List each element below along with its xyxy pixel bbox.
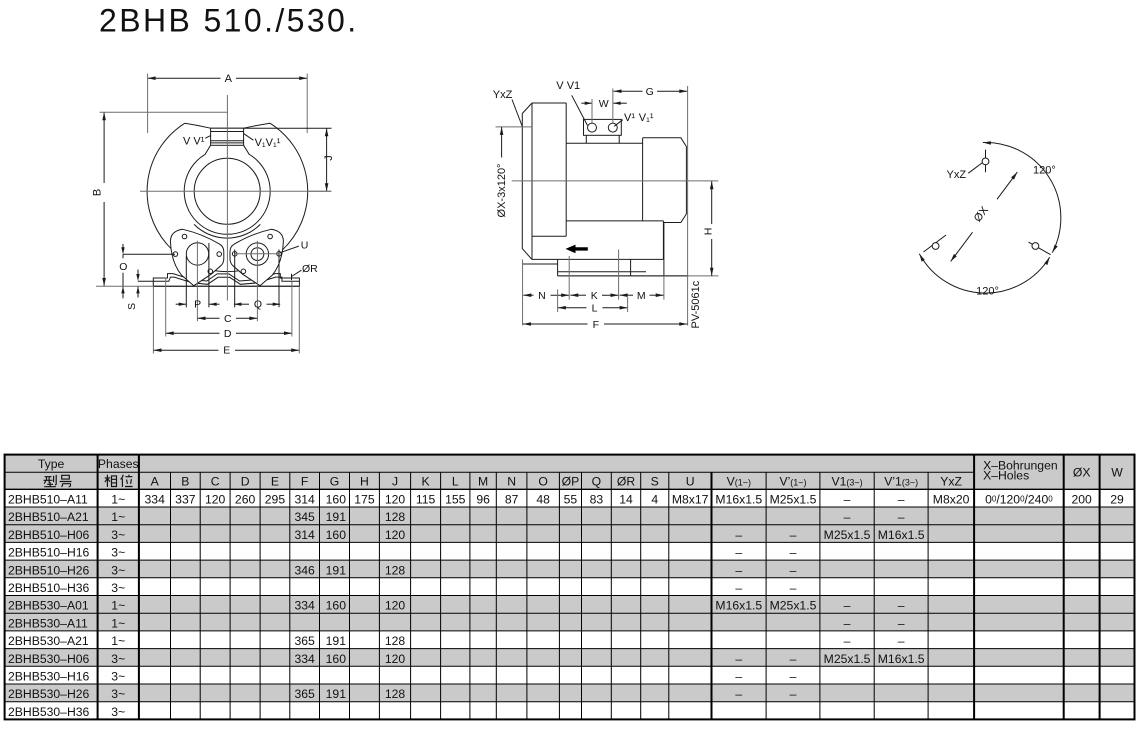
svg-text:–: – — [790, 652, 797, 666]
svg-text:–: – — [790, 546, 797, 560]
svg-text:334: 334 — [294, 599, 315, 613]
svg-text:120°: 120° — [976, 286, 999, 298]
svg-text:ØP: ØP — [562, 474, 580, 488]
svg-text:3~: 3~ — [111, 528, 125, 542]
svg-text:M8x20: M8x20 — [933, 492, 970, 506]
svg-text:–: – — [735, 563, 742, 577]
svg-text:2BHB530–H26: 2BHB530–H26 — [8, 687, 90, 701]
svg-text:M: M — [637, 290, 646, 302]
svg-text:O: O — [119, 261, 127, 273]
svg-text:–: – — [790, 581, 797, 595]
svg-text:–: – — [898, 599, 905, 613]
svg-text:295: 295 — [265, 492, 286, 506]
svg-text:1~: 1~ — [111, 510, 125, 524]
svg-text:48: 48 — [536, 492, 550, 506]
svg-text:H: H — [703, 228, 715, 236]
svg-text:346: 346 — [294, 563, 315, 577]
svg-text:M16x1.5: M16x1.5 — [878, 652, 925, 666]
svg-text:128: 128 — [385, 510, 406, 524]
svg-text:Type: Type — [38, 457, 65, 471]
svg-text:160: 160 — [326, 492, 347, 506]
svg-text:96: 96 — [476, 492, 490, 506]
svg-text:2BHB 510./530.: 2BHB 510./530. — [99, 3, 359, 39]
svg-text:Phases: Phases — [98, 457, 139, 471]
svg-text:M16x1.5: M16x1.5 — [715, 492, 762, 506]
svg-text:120: 120 — [205, 492, 226, 506]
svg-text:334: 334 — [145, 492, 166, 506]
svg-text:–: – — [735, 528, 742, 542]
svg-text:A: A — [151, 474, 160, 488]
svg-text:G: G — [330, 474, 339, 488]
svg-text:175: 175 — [354, 492, 375, 506]
svg-text:K: K — [422, 474, 430, 488]
svg-text:191: 191 — [326, 687, 347, 701]
svg-text:128: 128 — [385, 634, 406, 648]
svg-text:1~: 1~ — [111, 634, 125, 648]
svg-text:83: 83 — [590, 492, 604, 506]
svg-text:3~: 3~ — [111, 563, 125, 577]
svg-text:X–Holes: X–Holes — [983, 468, 1029, 482]
svg-text:–: – — [898, 510, 905, 524]
svg-text:2BHB530–H06: 2BHB530–H06 — [8, 652, 90, 666]
svg-text:N: N — [538, 290, 546, 302]
svg-text:337: 337 — [175, 492, 196, 506]
svg-text:J: J — [392, 474, 398, 488]
svg-text:M16x1.5: M16x1.5 — [878, 528, 925, 542]
svg-text:2BHB510–H26: 2BHB510–H26 — [8, 563, 90, 577]
svg-text:314: 314 — [294, 528, 315, 542]
svg-text:–: – — [790, 687, 797, 701]
svg-text:S: S — [651, 474, 659, 488]
svg-text:–: – — [844, 616, 851, 630]
svg-text:120°: 120° — [1033, 165, 1056, 177]
svg-text:155: 155 — [445, 492, 466, 506]
svg-text:V V¹: V V¹ — [183, 136, 205, 148]
svg-text:1~: 1~ — [111, 492, 125, 506]
svg-text:200: 200 — [1071, 492, 1092, 506]
svg-text:M16x1.5: M16x1.5 — [715, 599, 762, 613]
svg-text:–: – — [844, 599, 851, 613]
svg-text:2BHB510–H36: 2BHB510–H36 — [8, 581, 90, 595]
svg-text:128: 128 — [385, 563, 406, 577]
svg-text:V’1(3~): V’1(3~) — [884, 474, 918, 488]
svg-text:2BHB510–A11: 2BHB510–A11 — [8, 492, 88, 506]
svg-text:128: 128 — [385, 687, 406, 701]
svg-text:–: – — [735, 546, 742, 560]
svg-text:C: C — [211, 474, 220, 488]
svg-text:334: 334 — [294, 652, 315, 666]
svg-text:V¹: V¹ — [624, 112, 635, 124]
svg-text:W: W — [1111, 465, 1123, 479]
svg-text:2BHB530–A21: 2BHB530–A21 — [8, 634, 89, 648]
svg-text:U: U — [301, 239, 309, 251]
svg-text:191: 191 — [326, 563, 347, 577]
svg-text:191: 191 — [326, 634, 347, 648]
svg-text:160: 160 — [326, 599, 347, 613]
svg-text:J: J — [323, 155, 335, 161]
svg-text:14: 14 — [619, 492, 633, 506]
svg-text:120: 120 — [385, 652, 406, 666]
svg-text:Q: Q — [254, 299, 262, 311]
svg-text:YxZ: YxZ — [940, 474, 962, 488]
svg-text:D: D — [224, 328, 232, 340]
svg-text:D: D — [241, 474, 250, 488]
svg-text:A: A — [225, 73, 233, 85]
svg-text:55: 55 — [564, 492, 578, 506]
svg-text:1~: 1~ — [111, 616, 125, 630]
svg-text:ØR: ØR — [302, 263, 318, 275]
svg-text:ØX-3x120°: ØX-3x120° — [496, 164, 508, 218]
svg-text:2BHB530–A11: 2BHB530–A11 — [8, 616, 88, 630]
svg-text:V1(3~): V1(3~) — [831, 474, 862, 488]
svg-text:M25x1.5: M25x1.5 — [770, 492, 817, 506]
svg-text:P: P — [194, 299, 201, 311]
svg-text:–: – — [790, 669, 797, 683]
svg-text:B: B — [181, 474, 189, 488]
svg-text:–: – — [735, 652, 742, 666]
svg-text:V₁¹: V₁¹ — [639, 112, 654, 124]
svg-text:160: 160 — [326, 528, 347, 542]
svg-text:M25x1.5: M25x1.5 — [824, 528, 871, 542]
svg-text:–: – — [844, 634, 851, 648]
svg-text:120: 120 — [385, 492, 406, 506]
svg-text:87: 87 — [505, 492, 519, 506]
svg-text:3~: 3~ — [111, 705, 125, 719]
svg-text:–: – — [790, 563, 797, 577]
svg-text:PV-5061c: PV-5061c — [690, 280, 702, 328]
svg-text:ØX: ØX — [972, 204, 992, 224]
svg-text:2BHB510–A21: 2BHB510–A21 — [8, 510, 89, 524]
svg-text:–: – — [898, 616, 905, 630]
svg-text:–: – — [898, 492, 905, 506]
svg-text:L: L — [452, 474, 459, 488]
svg-text:E: E — [223, 345, 230, 357]
svg-text:2BHB510–H06: 2BHB510–H06 — [8, 528, 90, 542]
svg-text:365: 365 — [294, 634, 315, 648]
svg-text:191: 191 — [326, 510, 347, 524]
svg-text:260: 260 — [235, 492, 256, 506]
svg-text:–: – — [844, 492, 851, 506]
svg-text:1~: 1~ — [111, 599, 125, 613]
svg-text:M8x17: M8x17 — [672, 492, 709, 506]
svg-text:N: N — [507, 474, 516, 488]
svg-text:3~: 3~ — [111, 652, 125, 666]
svg-text:3~: 3~ — [111, 669, 125, 683]
svg-text:4: 4 — [651, 492, 658, 506]
svg-text:W: W — [599, 98, 609, 110]
svg-text:3~: 3~ — [111, 581, 125, 595]
svg-text:120: 120 — [385, 528, 406, 542]
svg-text:314: 314 — [294, 492, 315, 506]
svg-text:120: 120 — [385, 599, 406, 613]
svg-text:29: 29 — [1110, 492, 1124, 506]
svg-text:–: – — [735, 581, 742, 595]
svg-text:–: – — [735, 669, 742, 683]
svg-text:2BHB530–A01: 2BHB530–A01 — [8, 599, 89, 613]
svg-text:–: – — [898, 634, 905, 648]
svg-text:M25x1.5: M25x1.5 — [824, 652, 871, 666]
svg-text:2BHB530–H36: 2BHB530–H36 — [8, 705, 90, 719]
svg-text:3~: 3~ — [111, 546, 125, 560]
svg-text:YxZ: YxZ — [947, 169, 967, 181]
svg-text:O: O — [538, 474, 547, 488]
svg-text:K: K — [591, 290, 598, 302]
svg-text:YxZ: YxZ — [493, 89, 513, 101]
svg-text:S: S — [126, 303, 138, 310]
svg-text:C: C — [224, 313, 232, 325]
svg-text:G: G — [646, 86, 654, 98]
svg-text:Q: Q — [592, 474, 601, 488]
svg-text:345: 345 — [294, 510, 315, 524]
svg-text:00/1200/2400: 00/1200/2400 — [985, 492, 1053, 506]
svg-text:160: 160 — [326, 652, 347, 666]
svg-text:–: – — [790, 528, 797, 542]
svg-text:–: – — [844, 510, 851, 524]
svg-text:2BHB510–H16: 2BHB510–H16 — [8, 546, 90, 560]
svg-text:3~: 3~ — [111, 687, 125, 701]
svg-text:2BHB530–H16: 2BHB530–H16 — [8, 669, 90, 683]
svg-text:F: F — [301, 474, 308, 488]
svg-text:–: – — [735, 687, 742, 701]
svg-text:115: 115 — [416, 492, 436, 506]
svg-text:B: B — [91, 189, 103, 196]
svg-text:U: U — [686, 474, 695, 488]
svg-text:ØR: ØR — [617, 474, 635, 488]
svg-text:E: E — [271, 474, 279, 488]
svg-text:M: M — [478, 474, 488, 488]
svg-text:F: F — [593, 319, 599, 331]
svg-text:V’(1~): V’(1~) — [779, 474, 806, 488]
svg-text:M25x1.5: M25x1.5 — [770, 599, 817, 613]
svg-text:365: 365 — [294, 687, 315, 701]
svg-text:V₁V₁¹: V₁V₁¹ — [255, 137, 281, 149]
svg-text:L: L — [592, 303, 598, 315]
svg-text:V(1~): V(1~) — [727, 474, 751, 488]
svg-text:V V1: V V1 — [556, 80, 580, 92]
svg-text:ØX: ØX — [1073, 465, 1091, 479]
svg-text:H: H — [360, 474, 369, 488]
